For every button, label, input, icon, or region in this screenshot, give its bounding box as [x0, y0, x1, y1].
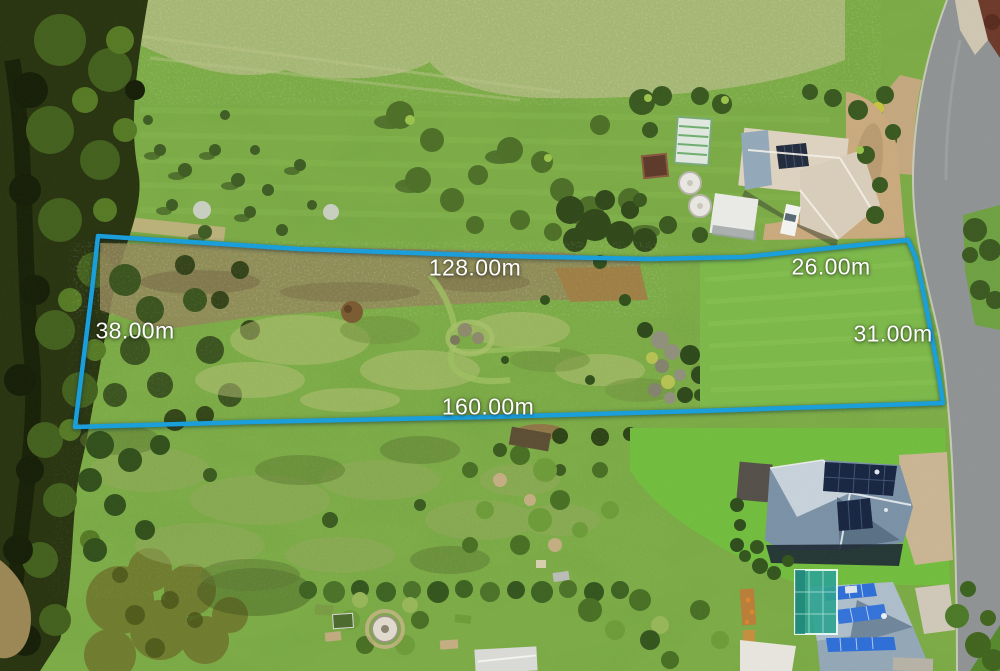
boundary-overlay: [0, 0, 1000, 671]
property-boundary-line: [75, 236, 943, 427]
aerial-property-photo: 128.00m 26.00m 38.00m 31.00m 160.00m: [0, 0, 1000, 671]
